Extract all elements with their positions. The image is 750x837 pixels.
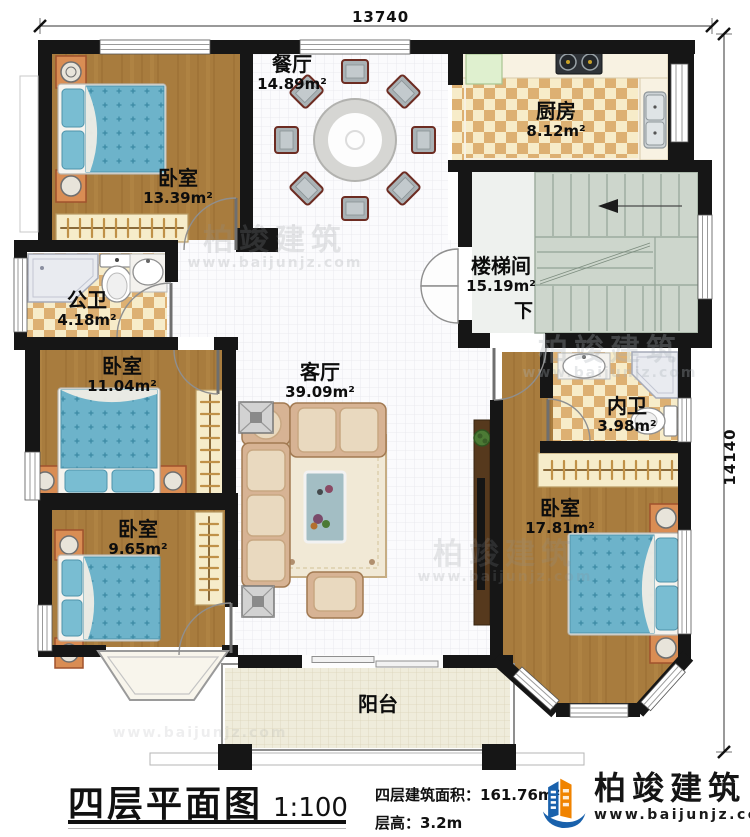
room-label-bedroom-top-left: 卧室 13.39m²: [143, 168, 213, 206]
company-logo-icon: [536, 772, 588, 832]
window: [25, 452, 40, 500]
floor-height-text: 层高：3.2m: [375, 810, 560, 837]
room-label-private-bath: 内卫 3.98m²: [597, 396, 656, 434]
room-label-bedroom-bottom-left: 卧室 9.65m²: [108, 519, 167, 557]
dimension-top: 13740: [352, 8, 409, 26]
room-label-balcony: 阳台: [358, 694, 398, 716]
tv-icon: [477, 478, 485, 590]
side-table-icon: [239, 402, 273, 433]
room-label-stairwell: 楼梯间 15.19m²: [466, 256, 536, 294]
room-label-bedroom-mid-left: 卧室 11.04m²: [87, 356, 157, 394]
plan-meta: 四层建筑面积：161.76m² 层高：3.2m: [375, 782, 560, 837]
window: [678, 398, 691, 442]
bathroom-sink-icon: [130, 254, 167, 292]
dimension-right: 14140: [721, 427, 739, 487]
tv-cabinet: [474, 420, 490, 625]
window: [671, 64, 688, 142]
cutting-board: [466, 54, 502, 84]
coffee-table: [305, 472, 345, 542]
company-logo: 柏竣建筑 www.baijunjz.com: [536, 772, 750, 832]
staircase: [535, 172, 698, 333]
window: [678, 530, 691, 634]
window: [698, 215, 712, 299]
room-label-living: 客厅 39.09m²: [285, 362, 355, 400]
plan-scale: 1:100: [273, 793, 348, 823]
room-label-kitchen: 厨房 8.12m²: [526, 101, 585, 139]
title-underline-thin: [68, 828, 346, 829]
room-label-public-bath: 公卫 4.18m²: [57, 290, 116, 328]
floorplan-page: 13740 14140 卧室 13.39m² 餐厅 14.89m² 厨房 8.1…: [0, 0, 750, 837]
floor-area-text: 四层建筑面积：161.76m²: [375, 782, 560, 810]
room-label-bedroom-bottom-right: 卧室 17.81m²: [525, 498, 595, 536]
plant-icon: [474, 430, 490, 446]
window: [38, 605, 52, 651]
exterior-window-sill: [20, 76, 38, 232]
window: [300, 40, 410, 54]
room-label-dining: 餐厅 14.89m²: [257, 54, 327, 92]
bay-window: [98, 651, 228, 700]
window: [100, 40, 210, 54]
kitchen-sink-icon: [644, 92, 666, 148]
bay-window: [570, 704, 628, 717]
sliding-door: [302, 655, 443, 668]
window: [14, 258, 27, 332]
stairs-down-label: 下: [514, 296, 533, 323]
company-logo-text: 柏竣建筑 www.baijunjz.com: [594, 772, 750, 823]
title-underline: [68, 820, 346, 824]
side-table-icon: [242, 586, 274, 617]
title-block: 四层平面图1:100 四层建筑面积：161.76m² 层高：3.2m 柏竣建筑 …: [0, 770, 750, 837]
